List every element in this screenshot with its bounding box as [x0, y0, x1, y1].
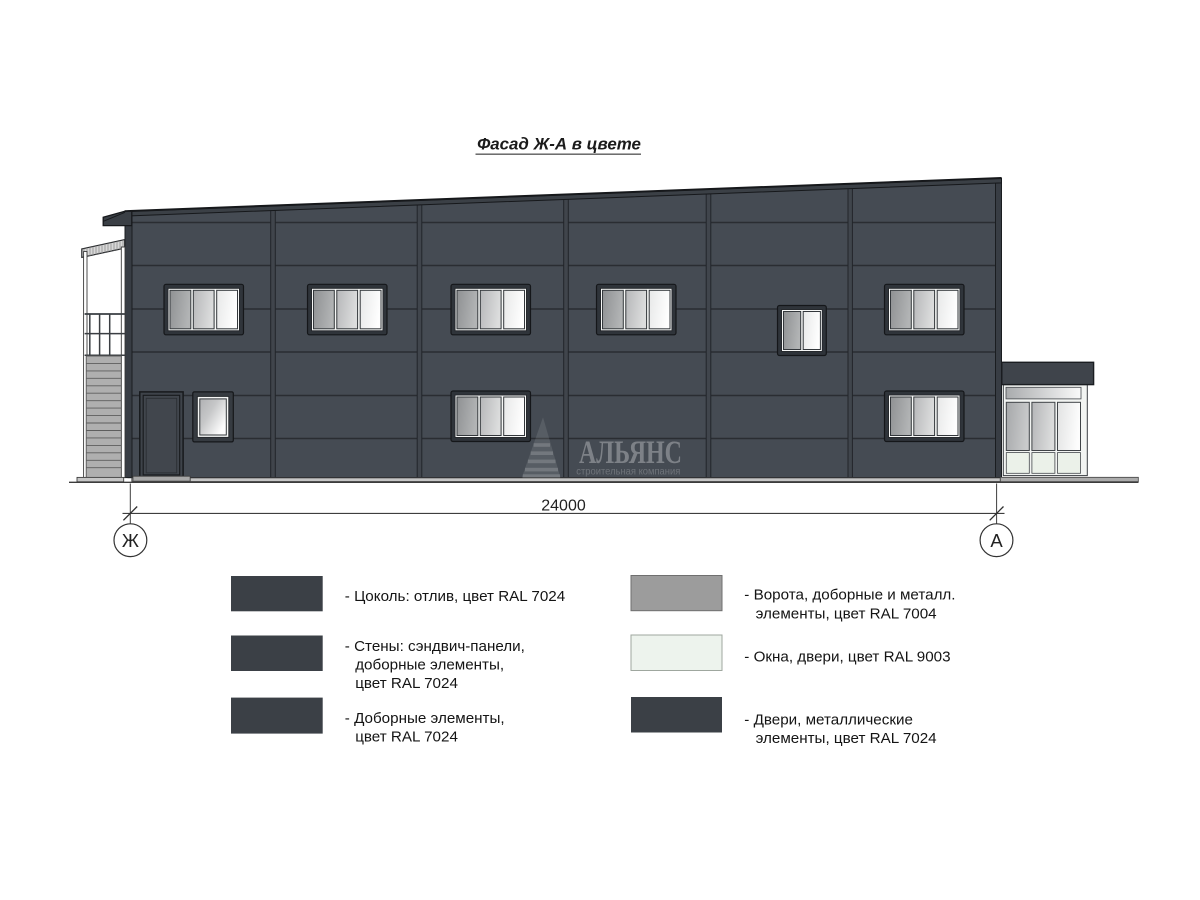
svg-text:элементы, цвет RAL 7024: элементы, цвет RAL 7024 [756, 730, 937, 747]
svg-text:- Доборные элементы,: - Доборные элементы, [345, 710, 505, 727]
svg-text:- Цоколь: отлив, цвет RAL 7024: - Цоколь: отлив, цвет RAL 7024 [345, 588, 565, 605]
svg-text:Ж: Ж [122, 530, 139, 551]
svg-text:- Ворота, доборные и металл.: - Ворота, доборные и металл. [744, 587, 955, 604]
svg-text:Фасад Ж-А в цвете: Фасад Ж-А в цвете [477, 134, 641, 153]
svg-text:- Двери, металлические: - Двери, металлические [744, 712, 913, 729]
svg-text:24000: 24000 [541, 497, 586, 514]
svg-text:- Стены: сэндвич-панели,: - Стены: сэндвич-панели, [345, 638, 525, 655]
svg-text:А: А [990, 530, 1003, 551]
svg-text:- Окна, двери, цвет RAL 9003: - Окна, двери, цвет RAL 9003 [744, 649, 950, 666]
svg-text:элементы, цвет RAL 7004: элементы, цвет RAL 7004 [756, 605, 937, 622]
svg-text:цвет RAL 7024: цвет RAL 7024 [355, 728, 458, 745]
svg-text:доборные элементы,: доборные элементы, [355, 656, 504, 673]
svg-text:строительная компания: строительная компания [576, 465, 680, 477]
svg-text:цвет RAL 7024: цвет RAL 7024 [355, 675, 458, 692]
